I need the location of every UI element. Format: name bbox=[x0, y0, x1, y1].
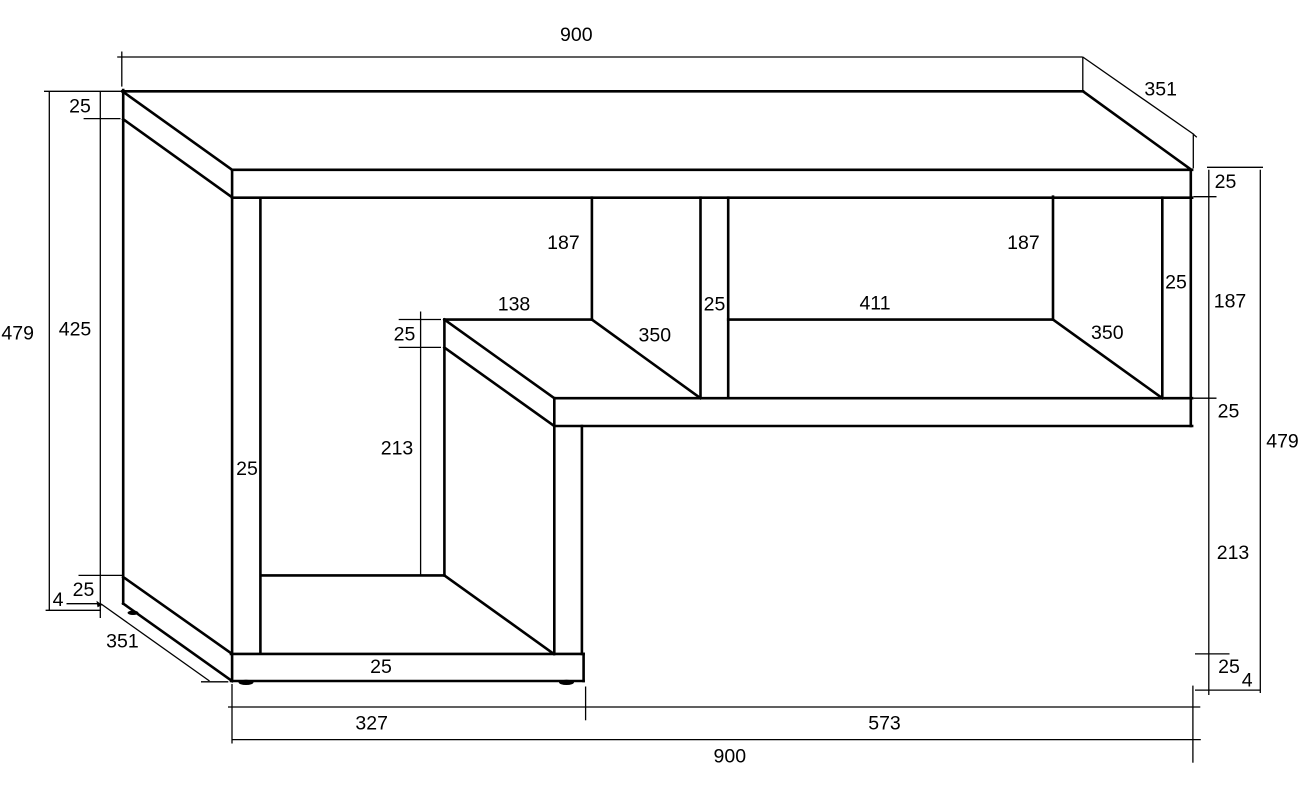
svg-text:187: 187 bbox=[547, 232, 580, 254]
svg-text:213: 213 bbox=[1217, 542, 1250, 564]
svg-text:479: 479 bbox=[1, 323, 34, 345]
svg-text:25: 25 bbox=[236, 458, 258, 480]
svg-text:213: 213 bbox=[381, 438, 414, 460]
svg-text:187: 187 bbox=[1214, 290, 1247, 312]
svg-text:25: 25 bbox=[69, 96, 91, 118]
svg-text:425: 425 bbox=[59, 319, 92, 341]
svg-text:25: 25 bbox=[1218, 656, 1240, 678]
svg-text:25: 25 bbox=[73, 579, 95, 601]
svg-text:350: 350 bbox=[639, 325, 672, 347]
svg-text:900: 900 bbox=[714, 745, 747, 767]
svg-text:327: 327 bbox=[355, 713, 388, 735]
svg-text:350: 350 bbox=[1091, 322, 1124, 344]
svg-text:25: 25 bbox=[1165, 272, 1187, 294]
svg-text:25: 25 bbox=[1215, 171, 1237, 193]
svg-text:4: 4 bbox=[1242, 669, 1253, 691]
svg-text:411: 411 bbox=[859, 293, 890, 315]
svg-text:4: 4 bbox=[53, 589, 64, 611]
svg-text:900: 900 bbox=[560, 24, 593, 46]
svg-text:187: 187 bbox=[1007, 232, 1040, 254]
svg-text:25: 25 bbox=[704, 294, 726, 316]
svg-text:25: 25 bbox=[1218, 400, 1240, 422]
svg-text:573: 573 bbox=[868, 713, 901, 735]
svg-text:479: 479 bbox=[1266, 431, 1298, 453]
svg-text:25: 25 bbox=[370, 656, 392, 678]
svg-text:25: 25 bbox=[394, 324, 416, 346]
svg-text:351: 351 bbox=[1144, 79, 1177, 101]
svg-text:138: 138 bbox=[498, 294, 531, 316]
svg-text:351: 351 bbox=[106, 631, 139, 653]
